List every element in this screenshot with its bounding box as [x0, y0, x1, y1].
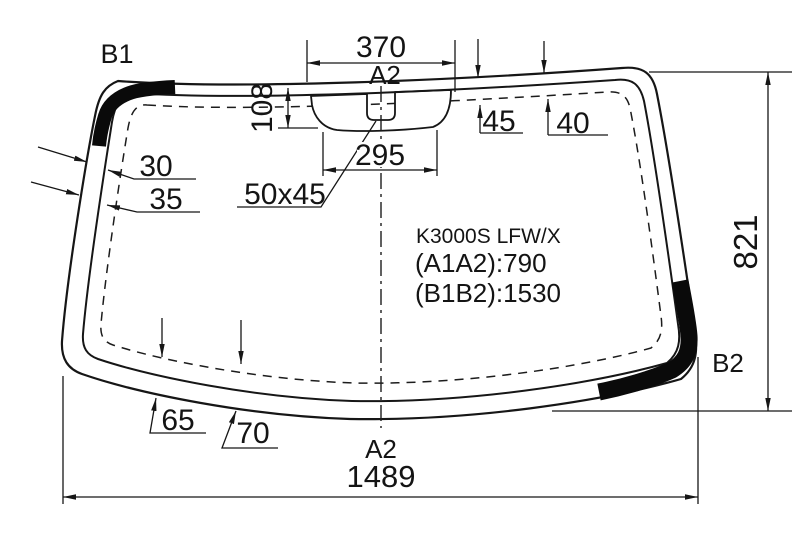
label-b1: B1 [100, 39, 133, 69]
label-a2-top: A2 [369, 60, 401, 90]
label-a1a2: (A1A2):790 [415, 248, 547, 278]
label-35: 35 [149, 183, 182, 216]
label-821: 821 [727, 214, 764, 269]
label-b2: B2 [712, 348, 744, 378]
label-40: 40 [556, 107, 589, 140]
label-108: 108 [246, 83, 279, 133]
label-45: 45 [482, 105, 515, 138]
drawing-canvas: 370 A2 108 295 50x45 45 40 30 35 65 70 8… [0, 0, 800, 540]
label-b1b2: (B1B2):1530 [415, 278, 561, 308]
label-50x45: 50x45 [244, 178, 326, 211]
windshield-diagram: 370 A2 108 295 50x45 45 40 30 35 65 70 8… [0, 0, 800, 540]
label-1489: 1489 [347, 459, 416, 494]
label-295: 295 [355, 139, 405, 172]
label-65: 65 [161, 404, 194, 437]
label-30: 30 [139, 150, 172, 183]
label-70: 70 [236, 417, 269, 450]
label-model: K3000S LFW/X [416, 225, 561, 248]
